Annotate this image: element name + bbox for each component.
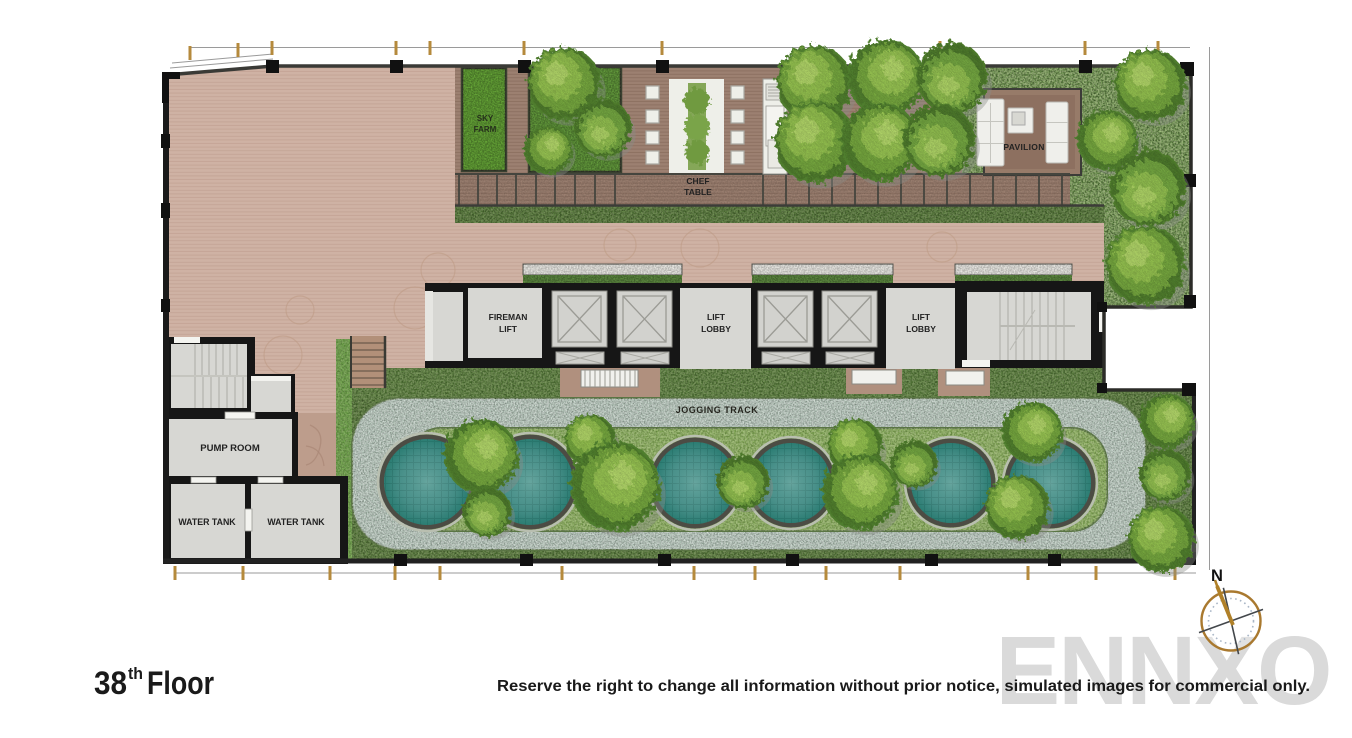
svg-text:ENNXO: ENNXO (996, 616, 1331, 725)
svg-text:LIFT: LIFT (707, 312, 726, 322)
svg-text:JOGGING TRACK: JOGGING TRACK (676, 405, 759, 415)
svg-text:SKY: SKY (477, 114, 494, 123)
svg-text:LIFT: LIFT (499, 324, 518, 334)
svg-text:FIREMAN: FIREMAN (489, 312, 528, 322)
svg-text:Floor: Floor (147, 665, 214, 701)
svg-text:PUMP ROOM: PUMP ROOM (200, 443, 260, 454)
svg-text:38: 38 (94, 665, 127, 701)
svg-text:WATER TANK: WATER TANK (178, 517, 236, 527)
svg-text:N: N (1211, 567, 1223, 585)
svg-text:CHEF: CHEF (686, 176, 709, 186)
svg-text:Reserve the right to change al: Reserve the right to change all informat… (497, 678, 1310, 695)
svg-text:LIFT: LIFT (912, 312, 931, 322)
svg-text:WATER TANK: WATER TANK (267, 517, 325, 527)
svg-text:LOBBY: LOBBY (906, 324, 936, 334)
svg-text:th: th (128, 664, 143, 683)
svg-text:LOBBY: LOBBY (701, 324, 731, 334)
svg-text:TABLE: TABLE (684, 187, 712, 197)
svg-text:FARM: FARM (474, 125, 497, 134)
svg-text:PAVILION: PAVILION (1003, 142, 1044, 152)
